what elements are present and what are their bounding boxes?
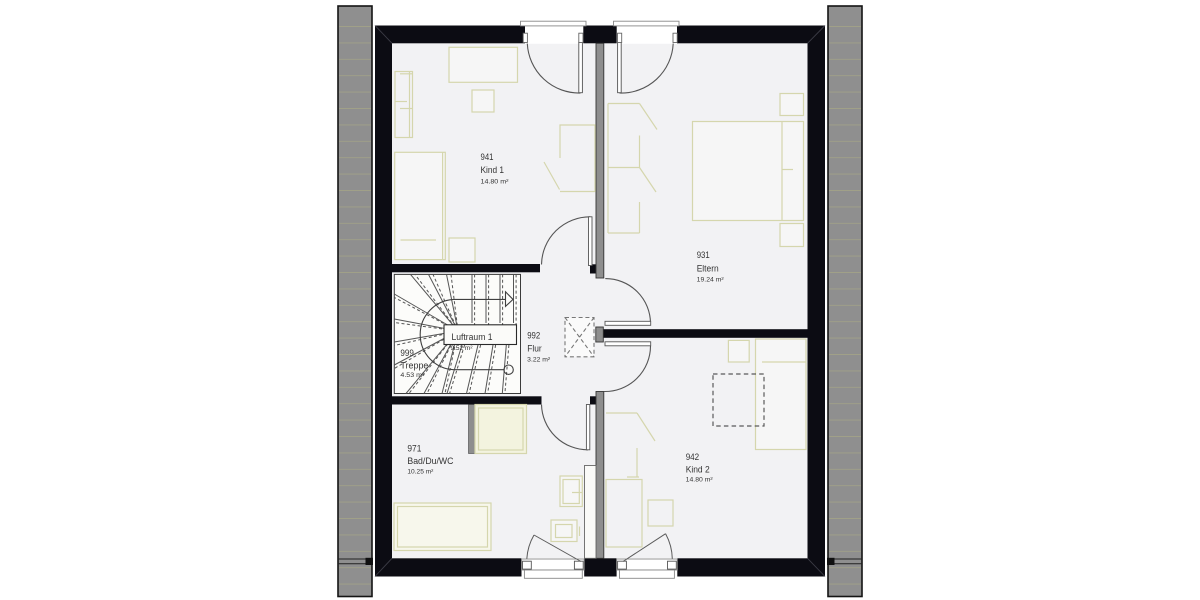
svg-text:Treppe: Treppe	[400, 361, 428, 372]
svg-text:9.52 m²: 9.52 m²	[451, 345, 474, 352]
svg-text:942: 942	[686, 452, 700, 463]
svg-text:4.53 m²: 4.53 m²	[400, 372, 425, 379]
svg-text:19.24 m²: 19.24 m²	[697, 277, 725, 284]
svg-text:992: 992	[527, 331, 540, 342]
svg-text:Kind 1: Kind 1	[481, 165, 505, 176]
svg-text:Kind 2: Kind 2	[686, 465, 710, 476]
svg-text:14.80 m²: 14.80 m²	[481, 179, 510, 186]
svg-text:10.25 m²: 10.25 m²	[407, 469, 434, 476]
svg-text:3.22 m²: 3.22 m²	[527, 357, 551, 364]
svg-text:Flur: Flur	[527, 344, 542, 355]
svg-text:Luftraum 1: Luftraum 1	[452, 332, 493, 343]
svg-text:14.80 m²: 14.80 m²	[686, 477, 714, 484]
svg-text:Bad/Du/WC: Bad/Du/WC	[407, 456, 453, 467]
svg-text:971: 971	[407, 444, 421, 455]
svg-text:999: 999	[400, 348, 414, 359]
svg-text:941: 941	[481, 152, 494, 163]
svg-text:931: 931	[697, 250, 710, 261]
svg-text:Eltern: Eltern	[697, 264, 719, 275]
